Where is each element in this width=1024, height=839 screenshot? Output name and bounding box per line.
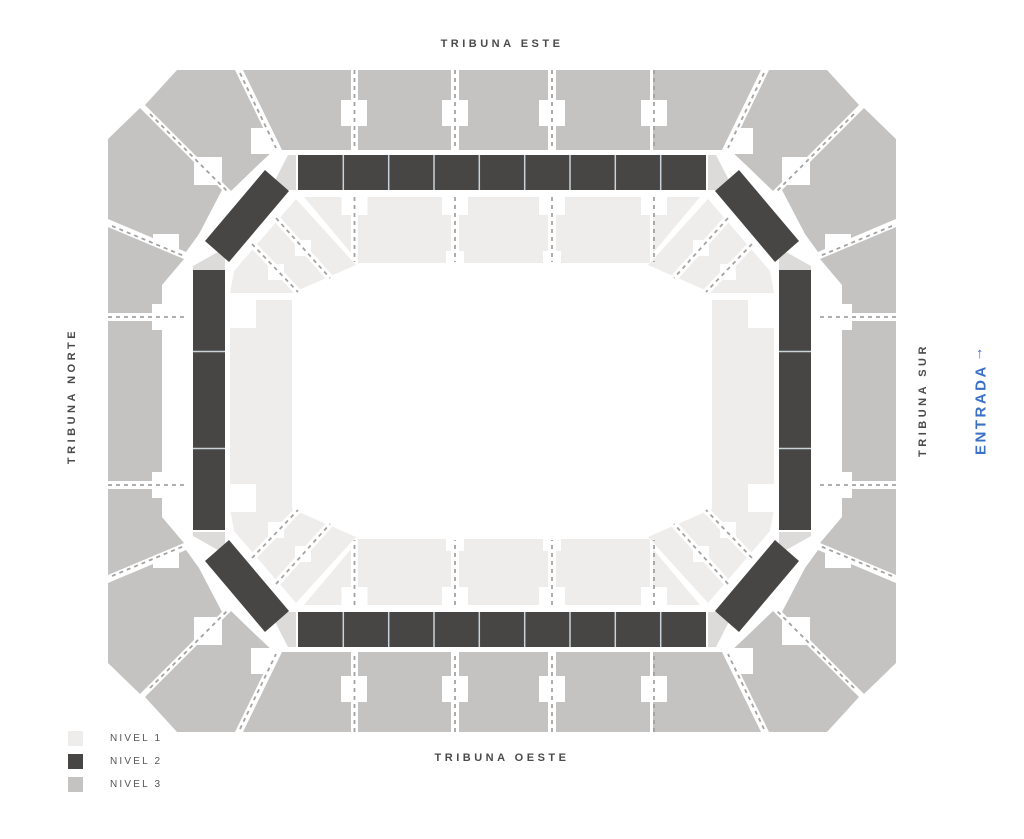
label-tribuna-este: TRIBUNA ESTE <box>0 38 1004 50</box>
legend-item-nivel3: NIVEL 3 <box>68 776 162 792</box>
legend-swatch-nivel3 <box>68 777 83 792</box>
legend-swatch-nivel2 <box>68 754 83 769</box>
legend: NIVEL 1 NIVEL 2 NIVEL 3 <box>68 730 162 799</box>
legend-label-nivel3: NIVEL 3 <box>110 779 162 790</box>
up-arrow-icon: ↑ <box>976 345 986 362</box>
legend-label-nivel2: NIVEL 2 <box>110 756 162 767</box>
seatmap-page: TRIBUNA ESTE TRIBUNA OESTE TRIBUNA NORTE… <box>0 0 1024 839</box>
entrada-text: ENTRADA <box>973 365 990 455</box>
legend-item-nivel1: NIVEL 1 <box>68 730 162 746</box>
legend-swatch-nivel1 <box>68 731 83 746</box>
label-tribuna-sur: TRIBUNA SUR <box>917 320 929 480</box>
legend-label-nivel1: NIVEL 1 <box>110 733 162 744</box>
stadium-map[interactable] <box>0 0 1024 839</box>
legend-item-nivel2: NIVEL 2 <box>68 753 162 769</box>
label-tribuna-norte: TRIBUNA NORTE <box>66 316 78 476</box>
label-entrada: ENTRADA ↑ <box>973 302 990 502</box>
